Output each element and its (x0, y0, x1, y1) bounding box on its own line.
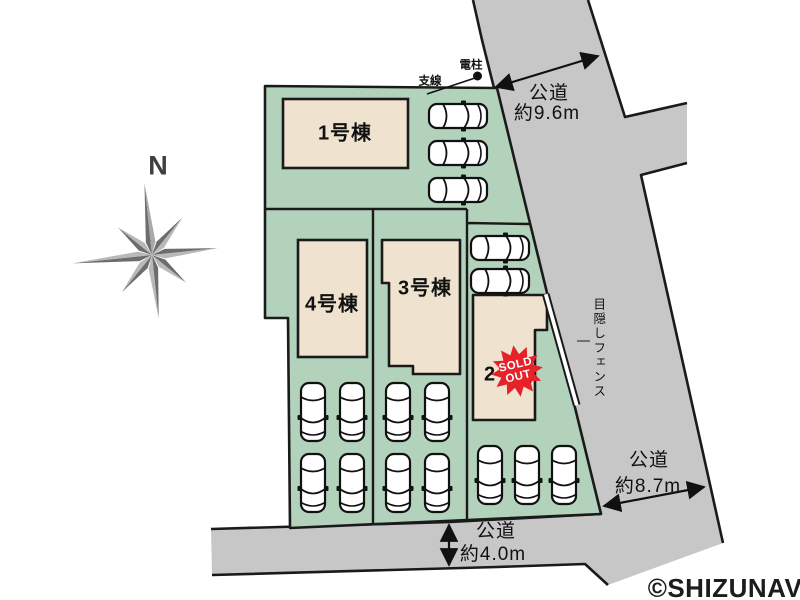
car-icon (298, 454, 329, 512)
road-top-name: 公道 (529, 83, 569, 105)
road-top-width: 約9.6m (514, 103, 580, 125)
road-bottom-name: 公道 (476, 521, 516, 543)
watermark: ©SHIZUNAV (648, 574, 800, 600)
car-icon (337, 383, 368, 441)
utility-pole-dot (473, 72, 482, 81)
building-4-label: 4号棟 (305, 294, 359, 317)
car-icon (471, 266, 529, 297)
north-label: N (148, 150, 168, 181)
guy-wire-label: 支線 (419, 75, 442, 88)
site-plan-map: N 電柱 支線 公道 約9.6m 公道 約8.7m 公道 約4.0m 目隠しフェ… (0, 0, 800, 600)
road-right-name: 公道 (629, 450, 669, 472)
car-icon (298, 383, 329, 441)
road-bottom-width: 約4.0m (460, 544, 526, 566)
car-icon (471, 233, 529, 264)
compass-rose-icon (65, 176, 224, 327)
building-3-label: 3号棟 (398, 278, 452, 301)
car-icon (429, 175, 487, 206)
utility-pole-label: 電柱 (460, 59, 483, 72)
car-icon (422, 454, 453, 512)
car-icon (475, 446, 506, 504)
car-icon (512, 446, 543, 504)
car-icon (429, 138, 487, 169)
car-icon (549, 446, 580, 504)
building-3 (382, 240, 460, 374)
car-icon (383, 454, 414, 512)
building-1-label: 1号棟 (318, 123, 372, 146)
road-right-width: 約8.7m (615, 476, 681, 498)
car-icon (383, 383, 414, 441)
car-icon (429, 101, 487, 132)
privacy-fence-label: 目隠しフェンス (591, 297, 605, 399)
car-icon (337, 454, 368, 512)
sold-out-stamp: SOLD OUT (487, 341, 547, 401)
car-icon (422, 383, 453, 441)
